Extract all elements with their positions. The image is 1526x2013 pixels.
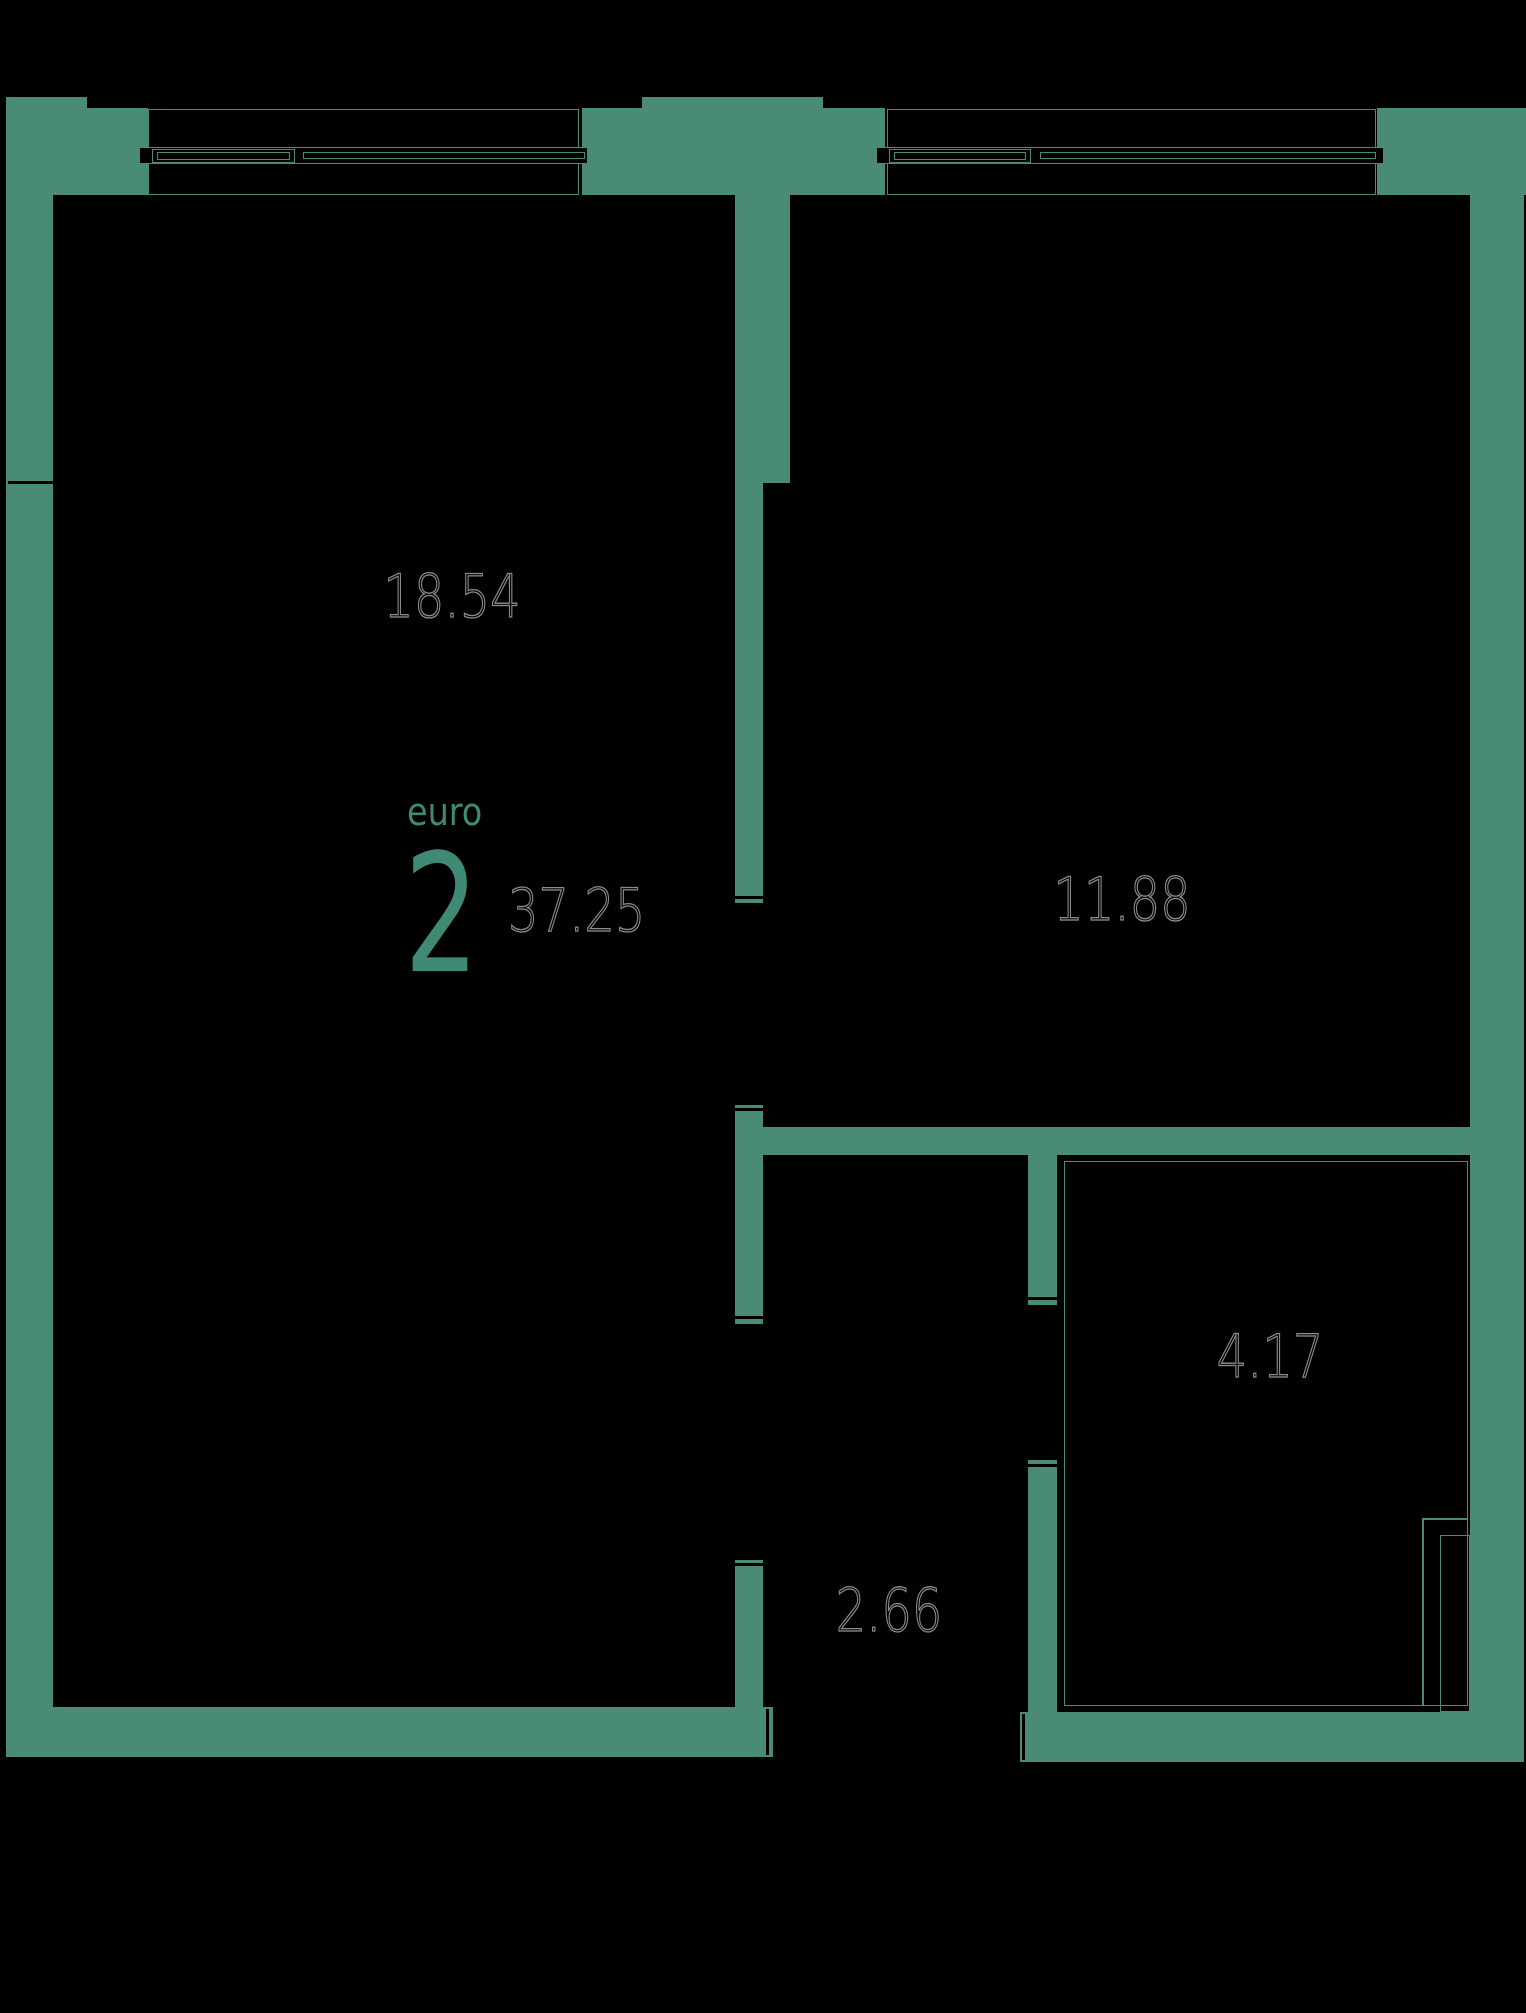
wall-central-upper-wide [735,195,790,483]
joint-tick-central-bottom [735,1563,763,1566]
wall-left-exterior [6,97,53,1757]
label-bedroom-area: 11.88 [1053,870,1190,930]
wall-corner-top-left [6,108,148,195]
joint-tick-left-wall [8,481,53,484]
label-unit-rooms: 2 [404,833,479,997]
wall-bathroom-left-upper [1028,1155,1057,1305]
wall-central-upper [735,483,763,903]
joint-tick-central-mid1 [735,1108,763,1111]
wall-bottom-right [1020,1712,1524,1762]
floor-plan-stage: 18.54 11.88 4.17 2.66 euro 2 37.25 [0,0,1526,2013]
wall-bottom-left [6,1707,773,1757]
window-right-pane [1040,152,1376,159]
bathroom-inner-outline [1064,1161,1468,1706]
window-left-sash-inner [157,152,290,160]
window-left-pane [303,152,585,159]
bathroom-inner-step-h [1422,1518,1468,1520]
wall-right-exterior [1470,195,1524,1762]
bathroom-duct-outline [1440,1535,1470,1712]
wall-central-middle [735,1105,763,1324]
window-pier-center-cap [642,97,823,110]
label-total-area: 37.25 [508,881,645,941]
joint-tick-bath-lower [1028,1464,1057,1467]
wall-central-lower [735,1560,763,1710]
bathroom-inner-step-v [1422,1518,1424,1706]
joint-tick-central-top [735,896,763,899]
wall-corner-top-right [1377,108,1526,195]
wall-bathroom-left-lower [1028,1460,1057,1715]
label-bathroom-area: 4.17 [1217,1327,1324,1387]
wall-partition-horizontal [763,1127,1470,1155]
joint-tick-bath-upper [1028,1297,1057,1300]
joint-tick-entrance-right [1022,1714,1025,1760]
joint-tick-entrance-left [766,1709,769,1755]
window-right-sash-inner [894,152,1026,160]
joint-tick-central-mid2 [735,1316,763,1319]
label-living-room-area: 18.54 [383,567,520,627]
label-hallway-area: 2.66 [836,1581,943,1641]
window-pier-center [582,108,885,195]
